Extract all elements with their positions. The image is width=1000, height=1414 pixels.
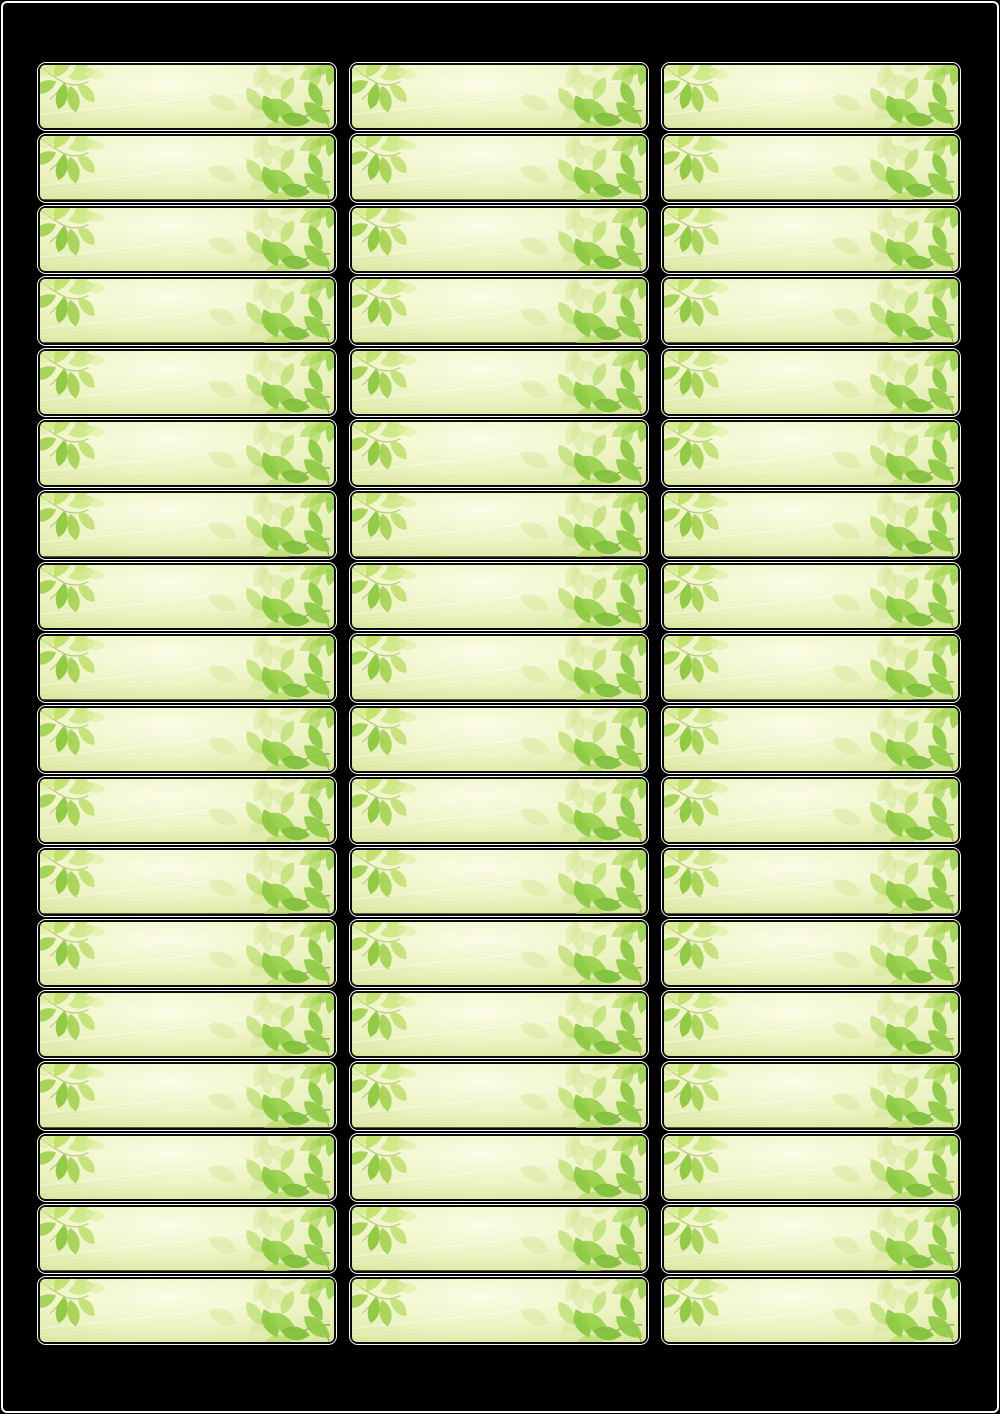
label-face (350, 277, 648, 344)
leaf-ornament-icon (664, 1207, 958, 1270)
label-face (350, 991, 648, 1058)
label-face (350, 634, 648, 701)
screenshot-root: { "page": { "title": "Blank address labe… (0, 0, 1000, 1414)
leaf-ornament-icon (352, 279, 646, 342)
leaf-ornament-icon (352, 993, 646, 1056)
address-label (37, 919, 337, 988)
label-face (662, 991, 960, 1058)
label-face (350, 920, 648, 987)
label-face (662, 1277, 960, 1344)
leaf-ornament-icon (40, 850, 334, 913)
label-face (350, 848, 648, 915)
leaf-ornament-icon (352, 922, 646, 985)
leaf-ornament-icon (664, 493, 958, 556)
label-face (662, 491, 960, 558)
leaf-ornament-icon (40, 279, 334, 342)
label-face (38, 991, 336, 1058)
label-face (38, 634, 336, 701)
leaf-ornament-icon (664, 565, 958, 628)
leaf-ornament-icon (352, 708, 646, 771)
address-label (37, 133, 337, 202)
leaf-ornament-icon (352, 779, 646, 842)
leaf-ornament-icon (352, 565, 646, 628)
address-label (37, 348, 337, 417)
label-face (38, 1277, 336, 1344)
leaf-ornament-icon (40, 136, 334, 199)
address-label (349, 1133, 649, 1202)
label-face (38, 920, 336, 987)
label-face (662, 1205, 960, 1272)
leaf-ornament-icon (664, 65, 958, 128)
leaf-ornament-icon (352, 636, 646, 699)
label-face (38, 706, 336, 773)
label-face (662, 63, 960, 130)
label-face (662, 206, 960, 273)
label-face (350, 1277, 648, 1344)
address-label (661, 990, 961, 1059)
leaf-ornament-icon (40, 779, 334, 842)
address-label (349, 776, 649, 845)
address-label (37, 419, 337, 488)
address-label (349, 633, 649, 702)
address-label (37, 1276, 337, 1345)
label-face (662, 420, 960, 487)
label-face (350, 1134, 648, 1201)
address-label (37, 776, 337, 845)
leaf-ornament-icon (352, 208, 646, 271)
leaf-ornament-icon (40, 922, 334, 985)
address-label (349, 490, 649, 559)
leaf-ornament-icon (664, 922, 958, 985)
label-face (38, 1062, 336, 1129)
leaf-ornament-icon (352, 422, 646, 485)
address-label (349, 1061, 649, 1130)
label-face (350, 1205, 648, 1272)
address-label (349, 990, 649, 1059)
leaf-ornament-icon (352, 65, 646, 128)
leaf-ornament-icon (664, 779, 958, 842)
leaf-ornament-icon (664, 1136, 958, 1199)
label-face (662, 777, 960, 844)
leaf-ornament-icon (352, 850, 646, 913)
label-face (38, 1134, 336, 1201)
label-face (662, 706, 960, 773)
leaf-ornament-icon (40, 1136, 334, 1199)
address-label (37, 705, 337, 774)
leaf-ornament-icon (40, 1207, 334, 1270)
leaf-ornament-icon (40, 1064, 334, 1127)
address-label (349, 1276, 649, 1345)
leaf-ornament-icon (352, 1207, 646, 1270)
label-face (662, 1062, 960, 1129)
label-face (38, 420, 336, 487)
label-face (38, 277, 336, 344)
label-face (350, 349, 648, 416)
label-face (38, 563, 336, 630)
leaf-ornament-icon (40, 636, 334, 699)
address-label (661, 562, 961, 631)
leaf-ornament-icon (40, 1279, 334, 1342)
address-label (37, 205, 337, 274)
leaf-ornament-icon (664, 422, 958, 485)
label-face (662, 634, 960, 701)
address-label (37, 562, 337, 631)
leaf-ornament-icon (664, 208, 958, 271)
leaf-ornament-icon (352, 351, 646, 414)
leaf-ornament-icon (664, 993, 958, 1056)
label-face (350, 63, 648, 130)
address-label (661, 1133, 961, 1202)
leaf-ornament-icon (664, 708, 958, 771)
leaf-ornament-icon (664, 1064, 958, 1127)
label-face (350, 563, 648, 630)
leaf-ornament-icon (40, 208, 334, 271)
leaf-ornament-icon (352, 1136, 646, 1199)
label-face (662, 848, 960, 915)
label-face (350, 134, 648, 201)
label-face (662, 1134, 960, 1201)
address-label (661, 490, 961, 559)
address-label (37, 1204, 337, 1273)
address-label (661, 1061, 961, 1130)
leaf-ornament-icon (40, 708, 334, 771)
label-face (350, 777, 648, 844)
label-face (38, 777, 336, 844)
address-label (37, 62, 337, 131)
leaf-ornament-icon (664, 636, 958, 699)
leaf-ornament-icon (664, 136, 958, 199)
label-face (662, 134, 960, 201)
leaf-ornament-icon (664, 351, 958, 414)
address-label (37, 276, 337, 345)
label-grid (37, 62, 961, 1345)
address-label (349, 348, 649, 417)
leaf-ornament-icon (40, 422, 334, 485)
address-label (349, 847, 649, 916)
label-face (662, 277, 960, 344)
address-label (661, 1204, 961, 1273)
label-face (662, 920, 960, 987)
address-label (661, 276, 961, 345)
address-label (349, 919, 649, 988)
address-label (37, 847, 337, 916)
address-label (661, 776, 961, 845)
label-face (38, 491, 336, 558)
leaf-ornament-icon (664, 850, 958, 913)
leaf-ornament-icon (40, 493, 334, 556)
label-face (38, 134, 336, 201)
leaf-ornament-icon (352, 1279, 646, 1342)
address-label (661, 419, 961, 488)
label-face (38, 349, 336, 416)
label-face (38, 848, 336, 915)
label-sheet-page (0, 0, 1000, 1414)
label-face (38, 1205, 336, 1272)
label-face (350, 1062, 648, 1129)
label-face (350, 491, 648, 558)
address-label (349, 276, 649, 345)
address-label (349, 205, 649, 274)
address-label (661, 633, 961, 702)
label-face (38, 63, 336, 130)
label-face (38, 206, 336, 273)
address-label (349, 133, 649, 202)
leaf-ornament-icon (352, 1064, 646, 1127)
address-label (349, 419, 649, 488)
label-face (662, 349, 960, 416)
address-label (37, 633, 337, 702)
leaf-ornament-icon (40, 993, 334, 1056)
leaf-ornament-icon (40, 351, 334, 414)
label-face (662, 563, 960, 630)
address-label (661, 705, 961, 774)
address-label (37, 1061, 337, 1130)
leaf-ornament-icon (352, 136, 646, 199)
address-label (661, 133, 961, 202)
leaf-ornament-icon (40, 65, 334, 128)
leaf-ornament-icon (664, 279, 958, 342)
address-label (661, 1276, 961, 1345)
address-label (349, 705, 649, 774)
address-label (37, 1133, 337, 1202)
address-label (349, 562, 649, 631)
leaf-ornament-icon (664, 1279, 958, 1342)
address-label (37, 990, 337, 1059)
address-label (349, 1204, 649, 1273)
address-label (37, 490, 337, 559)
address-label (661, 847, 961, 916)
leaf-ornament-icon (352, 493, 646, 556)
address-label (349, 62, 649, 131)
label-face (350, 420, 648, 487)
address-label (661, 62, 961, 131)
label-face (350, 206, 648, 273)
label-face (350, 706, 648, 773)
address-label (661, 348, 961, 417)
address-label (661, 919, 961, 988)
leaf-ornament-icon (40, 565, 334, 628)
address-label (661, 205, 961, 274)
